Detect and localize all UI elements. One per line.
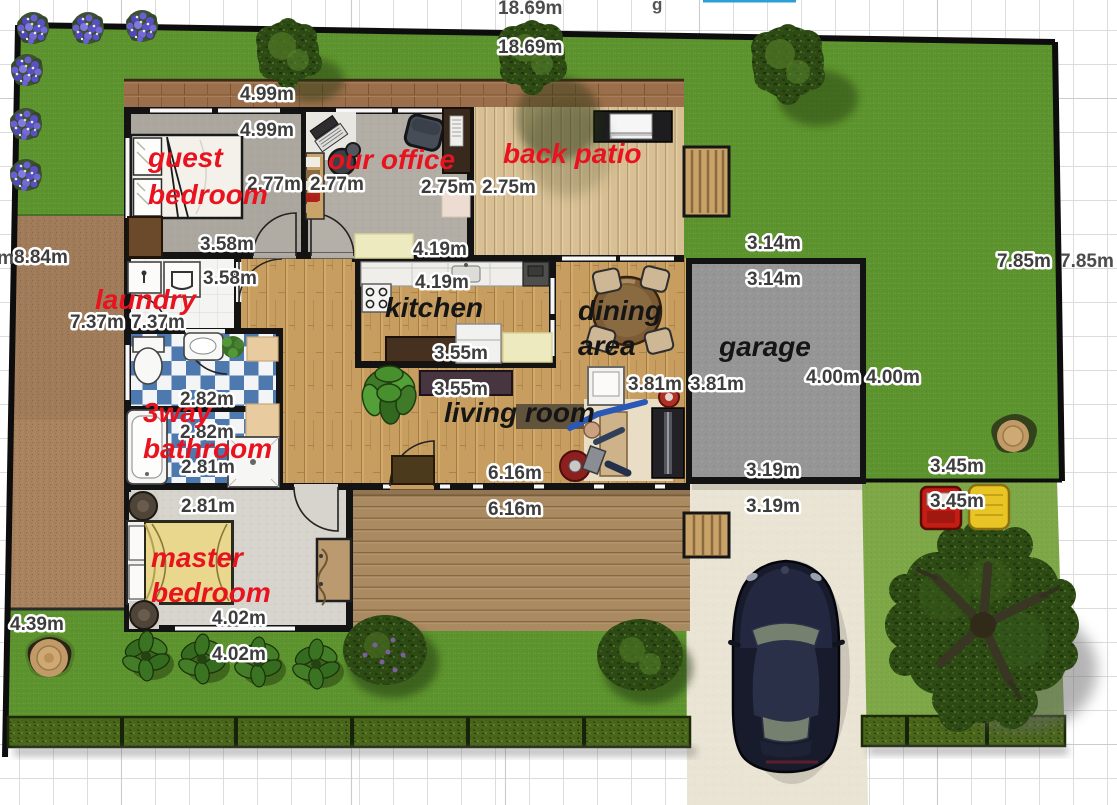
svg-text:back patio: back patio (503, 138, 641, 169)
svg-text:3.45m: 3.45m (930, 491, 984, 512)
svg-text:guest: guest (147, 142, 224, 173)
svg-text:dining: dining (578, 295, 662, 326)
svg-text:7.37m: 7.37m (70, 312, 124, 333)
svg-text:bedroom: bedroom (151, 577, 271, 608)
svg-text:4.19m: 4.19m (413, 239, 467, 260)
svg-text:g: g (652, 0, 662, 14)
svg-text:3.19m: 3.19m (746, 496, 800, 517)
svg-text:area: area (578, 330, 636, 361)
svg-text:7.37m: 7.37m (131, 312, 185, 333)
svg-text:master: master (151, 542, 245, 573)
svg-text:8.84m: 8.84m (14, 247, 68, 268)
svg-text:3.58m: 3.58m (200, 234, 254, 255)
svg-text:garage: garage (718, 331, 811, 362)
svg-text:2.77m: 2.77m (310, 174, 364, 195)
svg-text:6.16m: 6.16m (488, 499, 542, 520)
svg-text:7.85m: 7.85m (997, 251, 1051, 272)
svg-text:4.39m: 4.39m (10, 614, 64, 635)
svg-text:laundry: laundry (95, 284, 198, 315)
svg-text:18.69m: 18.69m (498, 0, 562, 19)
svg-text:4.02m: 4.02m (212, 608, 266, 629)
svg-text:3.58m: 3.58m (203, 268, 257, 289)
svg-text:3.45m: 3.45m (930, 456, 984, 477)
svg-text:2.75m: 2.75m (421, 177, 475, 198)
svg-text:4.99m: 4.99m (240, 84, 294, 105)
svg-text:3.81m: 3.81m (690, 374, 744, 395)
svg-text:bathroom: bathroom (143, 433, 272, 464)
svg-text:kitchen: kitchen (385, 292, 483, 323)
svg-text:3.55m: 3.55m (434, 343, 488, 364)
svg-text:8.84m: 8.84m (0, 248, 14, 269)
svg-text:4.99m: 4.99m (240, 120, 294, 141)
svg-text:4.02m: 4.02m (212, 644, 266, 665)
svg-text:18.69m: 18.69m (498, 37, 562, 58)
svg-text:3.14m: 3.14m (747, 233, 801, 254)
svg-text:3.19m: 3.19m (746, 460, 800, 481)
svg-text:3.14m: 3.14m (747, 269, 801, 290)
svg-text:2.81m: 2.81m (181, 496, 235, 517)
svg-text:3.81m: 3.81m (628, 374, 682, 395)
svg-text:our office: our office (328, 144, 455, 175)
svg-text:7.85m: 7.85m (1060, 251, 1114, 272)
svg-text:4.00m: 4.00m (866, 367, 920, 388)
svg-text:2.75m: 2.75m (482, 177, 536, 198)
svg-text:3way: 3way (143, 397, 213, 428)
svg-text:6.16m: 6.16m (488, 463, 542, 484)
svg-text:4.19m: 4.19m (415, 272, 469, 293)
svg-text:living room: living room (444, 397, 595, 428)
svg-text:4.00m: 4.00m (806, 367, 860, 388)
svg-text:bedroom: bedroom (148, 179, 268, 210)
